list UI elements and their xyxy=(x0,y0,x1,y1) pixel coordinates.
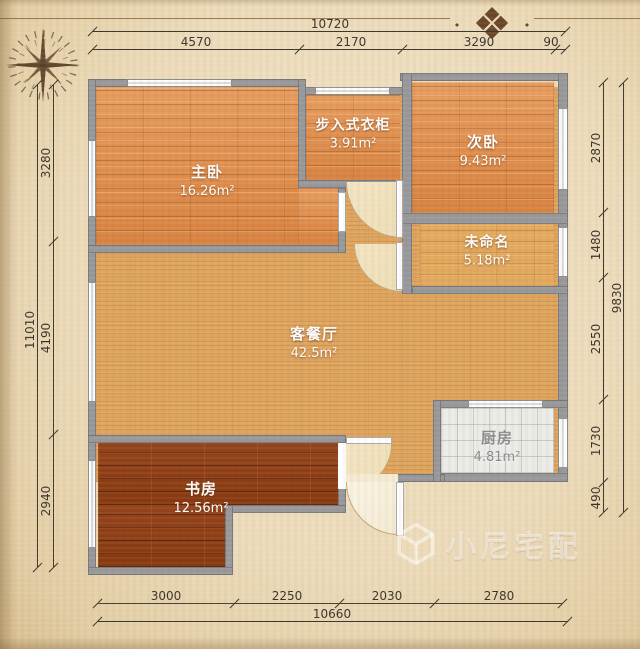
door-opening-master xyxy=(338,192,346,232)
paper-edge-top xyxy=(0,0,640,6)
paper-edge-bottom xyxy=(0,637,640,649)
watermark: 小尼宅配 xyxy=(394,520,582,568)
dim-top-seg-1: 2170 xyxy=(336,35,367,49)
window-kitchen-top xyxy=(468,400,543,408)
wall-top-second-bedroom xyxy=(400,73,568,81)
wall-master-bottom xyxy=(88,245,346,253)
paper-edge-left xyxy=(0,0,16,649)
dim-top-seg-0: 4570 xyxy=(181,35,212,49)
door-arc-entry xyxy=(346,482,399,535)
room-name: 步入式衣柜 xyxy=(316,115,391,135)
dim-left-seg-0: 3280 xyxy=(39,148,53,179)
door-opening-study xyxy=(338,443,346,489)
window-living-left xyxy=(88,282,96,402)
room-name: 未命名 xyxy=(464,232,511,252)
window-kitchen-right xyxy=(558,418,568,468)
watermark-text: 小尼宅配 xyxy=(446,522,582,566)
room-area: 3.91m² xyxy=(316,137,391,152)
window-master-left xyxy=(88,140,96,217)
dim-right-seg-3: 1730 xyxy=(589,426,603,457)
window-unnamed-right xyxy=(558,227,568,277)
ornament-dot-icon: • xyxy=(524,19,531,32)
dim-top-seg-3: 90 xyxy=(543,35,558,49)
room-name: 书房 xyxy=(173,478,228,499)
dim-left-seg-1: 4190 xyxy=(39,323,53,354)
room-area: 16.26m² xyxy=(179,184,234,199)
dim-line-left-segments xyxy=(53,85,54,568)
label-study: 书房 12.56m² xyxy=(173,478,228,516)
room-area: 42.5m² xyxy=(290,346,338,361)
room-name: 主卧 xyxy=(179,161,234,182)
dim-bottom-seg-3: 2780 xyxy=(484,589,515,603)
window-second-bedroom-right xyxy=(558,108,568,190)
dim-line-bottom-segments xyxy=(98,603,563,604)
room-area: 9.43m² xyxy=(460,154,507,169)
room-name: 客餐厅 xyxy=(290,323,338,344)
label-unnamed: 未命名 5.18m² xyxy=(464,232,511,269)
dim-bottom-total: 10660 xyxy=(313,607,351,621)
door-opening-entry xyxy=(346,474,398,482)
dim-line-bottom-total xyxy=(98,621,568,622)
wall-study-top xyxy=(88,435,346,443)
window-closet-top xyxy=(315,87,390,95)
window-study-left xyxy=(88,460,96,548)
floor-plan-canvas: • ❖ • xyxy=(0,0,640,649)
label-living-dining: 客餐厅 42.5m² xyxy=(290,323,338,361)
room-area: 4.81m² xyxy=(474,450,521,465)
watermark-cube-logo-icon xyxy=(394,520,438,568)
dim-line-left-total xyxy=(37,85,38,568)
ornament-dot-icon: • xyxy=(454,19,461,32)
wall-second-bedroom-bottom xyxy=(402,213,568,224)
label-second-bedroom: 次卧 9.43m² xyxy=(460,131,507,169)
wall-kitchen-bottom xyxy=(433,473,568,482)
dim-right-seg-1: 1480 xyxy=(589,230,603,261)
dim-bottom-seg-2: 2030 xyxy=(372,589,403,603)
dim-right-seg-2: 2550 xyxy=(589,324,603,355)
label-master-bedroom: 主卧 16.26m² xyxy=(179,161,234,199)
top-border-line-right xyxy=(534,18,640,19)
room-name: 次卧 xyxy=(460,131,507,152)
dim-right-seg-0: 2870 xyxy=(589,133,603,164)
dim-line-top-total xyxy=(93,31,566,32)
dim-left-seg-2: 2940 xyxy=(39,486,53,517)
room-area: 12.56m² xyxy=(173,501,228,516)
wall-unnamed-bottom xyxy=(412,286,568,294)
top-border-line-left xyxy=(0,18,450,19)
door-leaf-second-bedroom xyxy=(396,180,403,238)
room-name: 厨房 xyxy=(474,427,521,448)
dim-right-seg-4: 490 xyxy=(589,487,603,510)
room-area: 5.18m² xyxy=(464,254,511,269)
room-master-bedroom-notch xyxy=(298,188,338,245)
wall-hall-right xyxy=(402,73,412,294)
door-leaf-study xyxy=(346,437,392,444)
label-kitchen: 厨房 4.81m² xyxy=(474,427,521,465)
door-leaf-unnamed xyxy=(396,242,403,290)
dim-bottom-seg-0: 3000 xyxy=(151,589,182,603)
wall-master-closet xyxy=(298,79,306,188)
wall-study-bottom xyxy=(88,567,233,575)
dim-right-total: 9830 xyxy=(610,283,624,314)
label-walk-in-closet: 步入式衣柜 3.91m² xyxy=(316,115,391,152)
dim-line-top-segments xyxy=(93,49,566,50)
wall-kitchen-left xyxy=(433,400,441,482)
dim-line-right-segments xyxy=(603,83,604,513)
dim-top-total: 10720 xyxy=(311,17,349,31)
window-master-top xyxy=(127,79,232,87)
wall-study-step xyxy=(225,505,346,513)
dim-top-seg-2: 3290 xyxy=(464,35,495,49)
dim-left-total: 11010 xyxy=(23,311,37,349)
dim-bottom-seg-1: 2250 xyxy=(272,589,303,603)
